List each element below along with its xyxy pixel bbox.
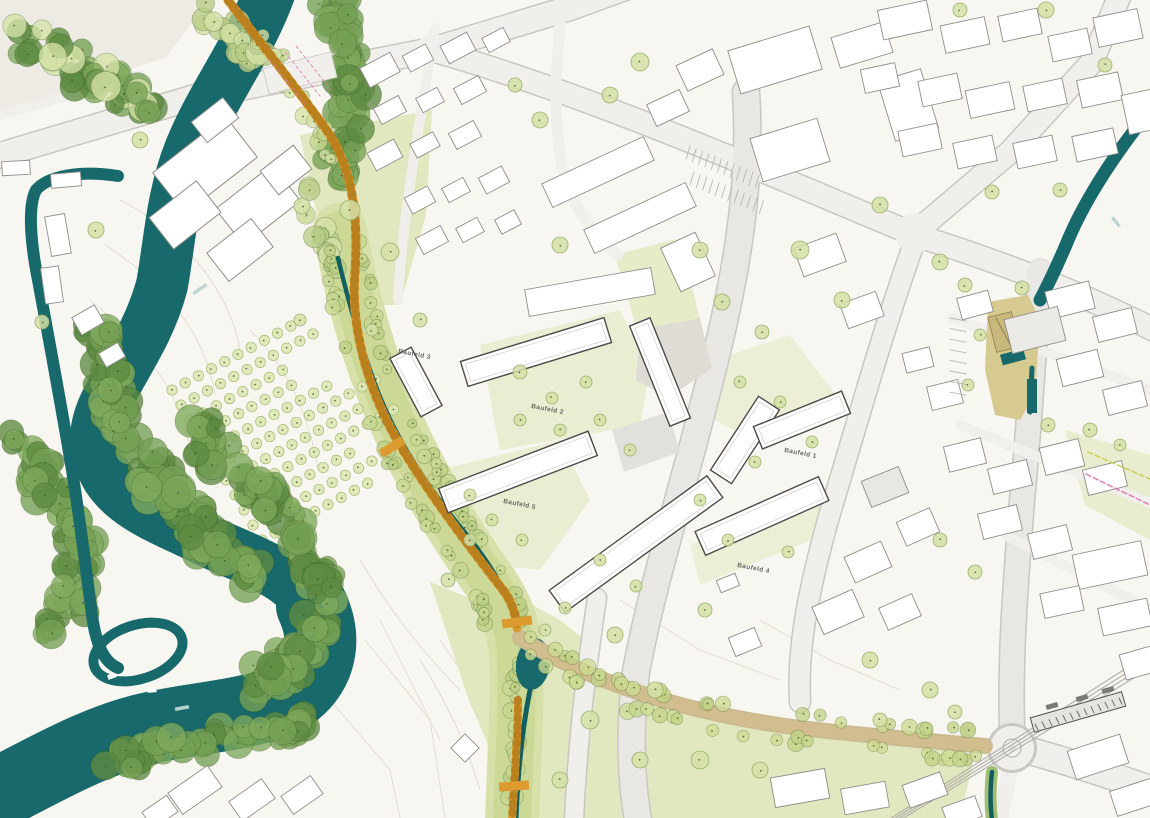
masterplan-map: Baufeld 3 Baufeld 2 Baufeld 5 Baufeld 1 …	[0, 0, 1150, 818]
map-canvas	[0, 0, 1150, 818]
